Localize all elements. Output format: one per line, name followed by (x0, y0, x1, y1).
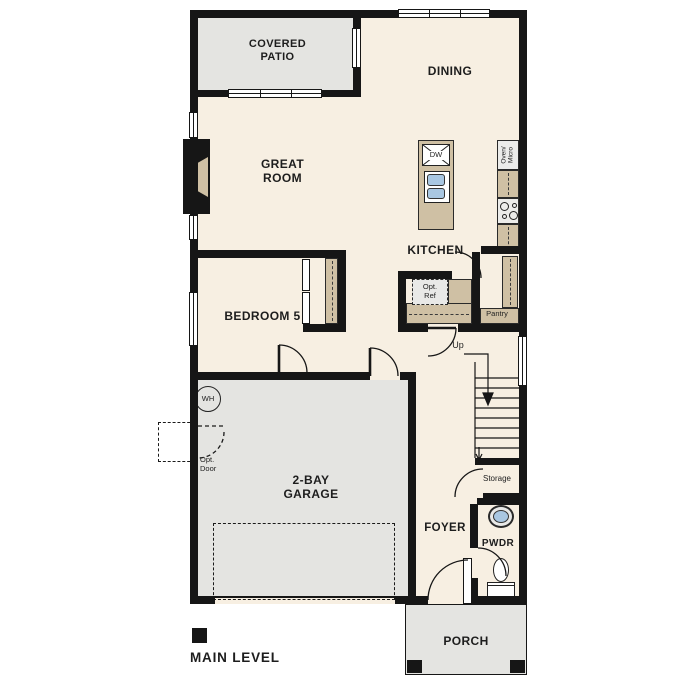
wall (475, 458, 519, 465)
wall (198, 250, 346, 258)
window (228, 89, 322, 98)
plan-title: MAIN LEVEL (190, 650, 280, 665)
wall (519, 10, 527, 604)
room-label-porch: PORCH (430, 634, 502, 648)
water-heater-icon: WH (195, 386, 221, 412)
wall (190, 372, 370, 380)
closet-bypass-door (302, 259, 310, 291)
floor-plan: DW Oven/ Micro Opt. Ref WH (0, 0, 687, 687)
window (352, 28, 361, 68)
room-label-kitchen: KITCHEN (398, 243, 473, 257)
island-sink-icon (424, 171, 450, 203)
room-label-dining: DINING (410, 64, 490, 78)
dishwasher-icon: DW (422, 144, 450, 166)
optional-refrigerator: Opt. Ref (412, 279, 448, 305)
window (189, 215, 198, 240)
room-label-great-room: GREAT ROOM (240, 157, 325, 185)
kitchen-counter (448, 279, 472, 305)
opt-ref-label: Opt. Ref (413, 283, 447, 300)
pantry-label: Pantry (476, 310, 518, 319)
wall (398, 324, 428, 332)
room-label-covered-patio: COVERED PATIO (230, 38, 325, 64)
up-label: Up (448, 340, 468, 350)
porch-post (510, 660, 525, 673)
storage-label: Storage (476, 474, 518, 483)
window (189, 112, 198, 138)
room-label-pwdr: PWDR (475, 538, 521, 550)
pwdr-sink-icon (488, 505, 514, 528)
wall (303, 324, 346, 332)
main-level-key-square (192, 628, 207, 643)
window (189, 292, 198, 346)
opt-door-label: Opt. Door (197, 456, 232, 473)
oven-micro-label: Oven/ Micro (501, 140, 516, 170)
room-label-foyer: FOYER (410, 522, 480, 536)
water-heater-label: WH (196, 395, 220, 404)
room-label-bedroom5: BEDROOM 5 (200, 309, 325, 323)
closet-shelf (325, 258, 338, 324)
cooktop-icon (497, 198, 519, 224)
wall (472, 252, 480, 332)
wall (408, 372, 416, 604)
wall (398, 271, 452, 279)
dishwasher-label: DW (426, 151, 446, 160)
pantry-shelf (502, 256, 518, 308)
room-label-garage: 2-BAY GARAGE (250, 473, 372, 501)
garage-door-dashed-outline (213, 523, 395, 600)
wall (398, 271, 406, 332)
porch-post (407, 660, 422, 673)
kitchen-counter (406, 303, 472, 324)
oven-micro-cabinet: Oven/ Micro (497, 140, 519, 170)
front-door-leaf (463, 558, 472, 604)
window (518, 336, 527, 386)
wall (481, 246, 527, 254)
wall (338, 250, 346, 332)
wall (477, 498, 519, 505)
kitchen-counter (497, 170, 519, 198)
toilet-tank (487, 582, 515, 597)
garage-door-opening-line (215, 596, 395, 598)
toilet-icon (493, 558, 509, 582)
window (398, 9, 490, 18)
wall (458, 324, 527, 332)
wall (190, 596, 215, 604)
